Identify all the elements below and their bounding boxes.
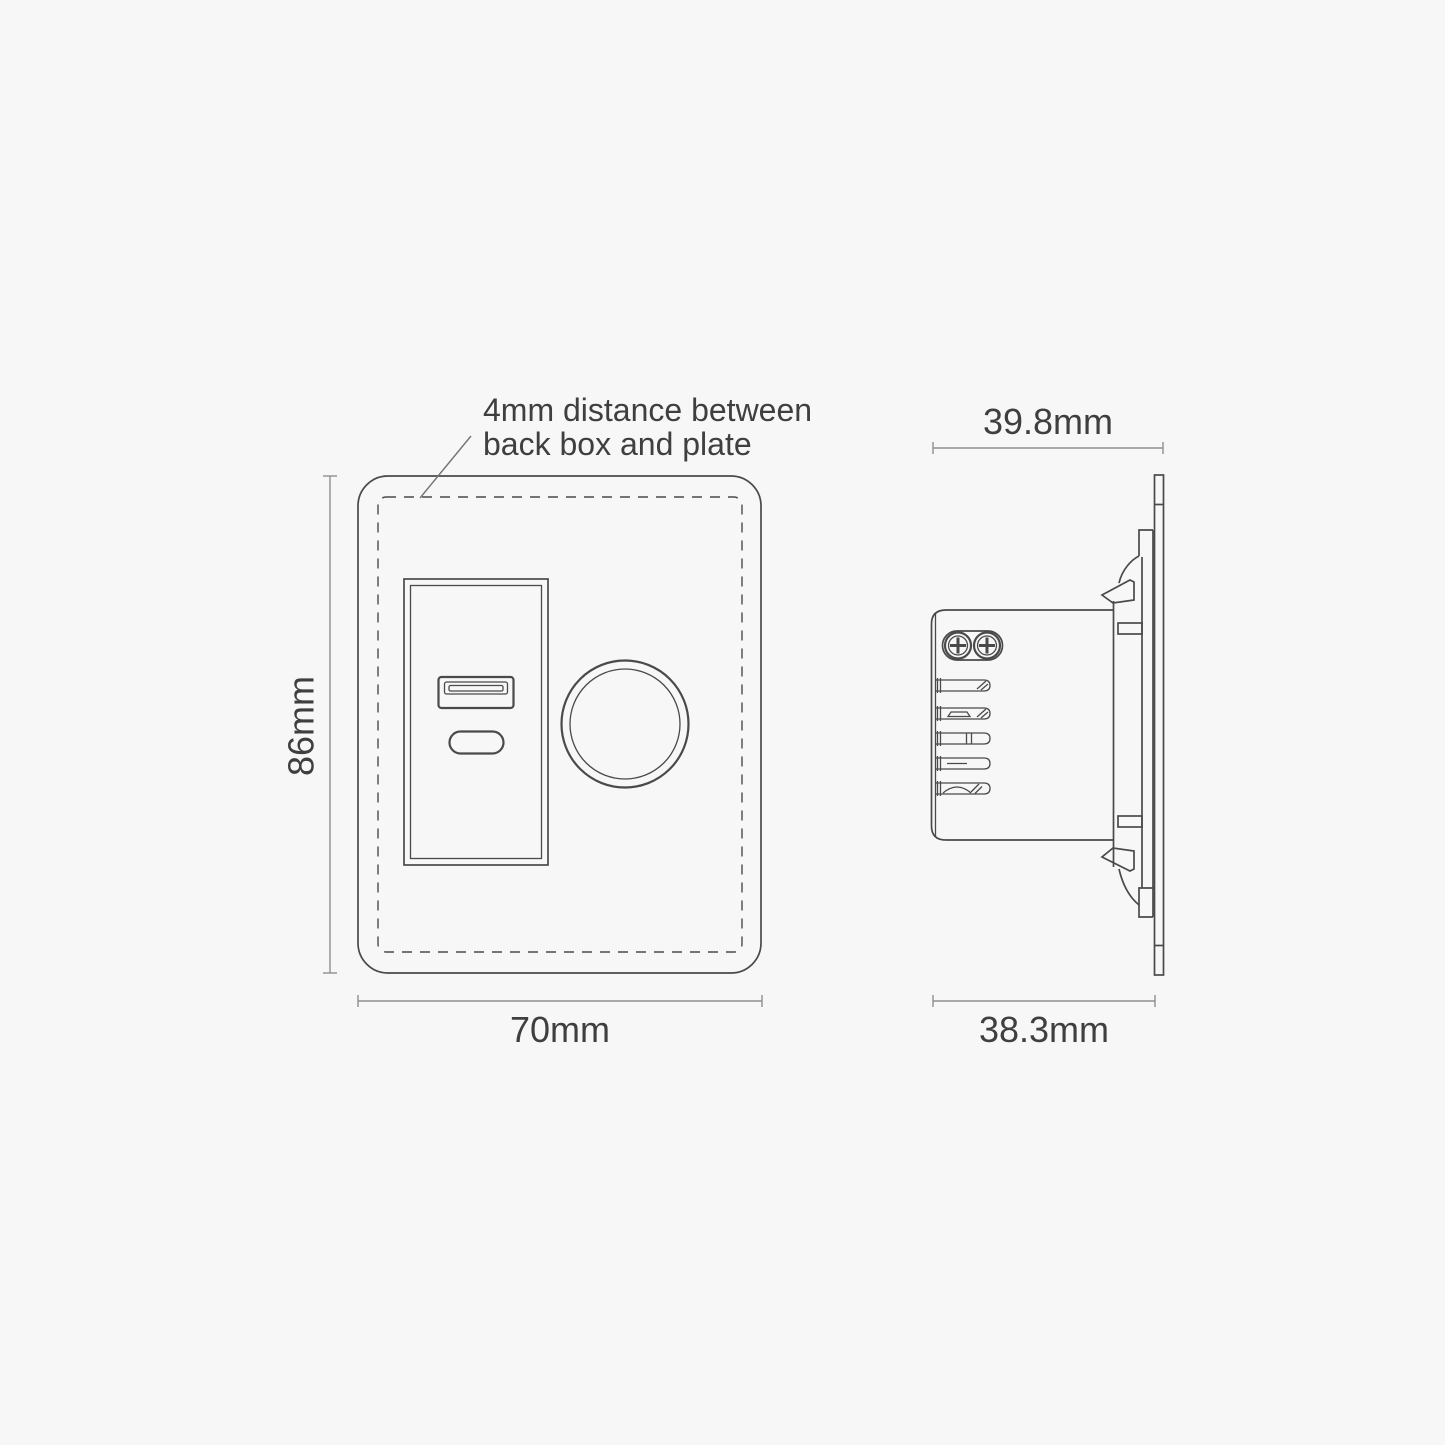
mounting-frame	[1102, 530, 1153, 917]
dim-top-label: 39.8mm	[983, 401, 1113, 442]
dim-bottom-line	[933, 995, 1155, 1007]
annotation-leader-line	[420, 436, 471, 498]
side-view-diagram: 39.8mm	[932, 401, 1164, 1050]
dim-width-label: 70mm	[510, 1009, 610, 1050]
top-claw	[1102, 580, 1134, 603]
annotation-text-line1: 4mm distance between	[483, 392, 812, 428]
bottom-claw	[1102, 848, 1134, 871]
faceplate-outline	[358, 476, 761, 973]
dimension-diagram-canvas: 4mm distance between back box and plate …	[0, 0, 1445, 1445]
annotation-text-line2: back box and plate	[483, 426, 752, 462]
dim-top-line	[933, 442, 1163, 454]
dimmer-knob	[562, 661, 689, 788]
usb-a-port-icon	[439, 677, 514, 708]
screw-left-icon	[945, 633, 971, 659]
dim-height-label: 86mm	[281, 676, 322, 776]
dim-height-line	[323, 476, 337, 973]
screw-right-icon	[974, 633, 1000, 659]
side-plate-profile	[1155, 475, 1164, 975]
usb-c-port-icon	[450, 732, 504, 754]
technical-drawing: 4mm distance between back box and plate …	[0, 0, 1445, 1445]
dim-width-line	[358, 995, 762, 1007]
front-view-diagram: 4mm distance between back box and plate …	[281, 392, 813, 1050]
terminal-fins	[936, 678, 990, 796]
usb-module-outline	[404, 579, 548, 865]
dim-bottom-label: 38.3mm	[979, 1009, 1109, 1050]
